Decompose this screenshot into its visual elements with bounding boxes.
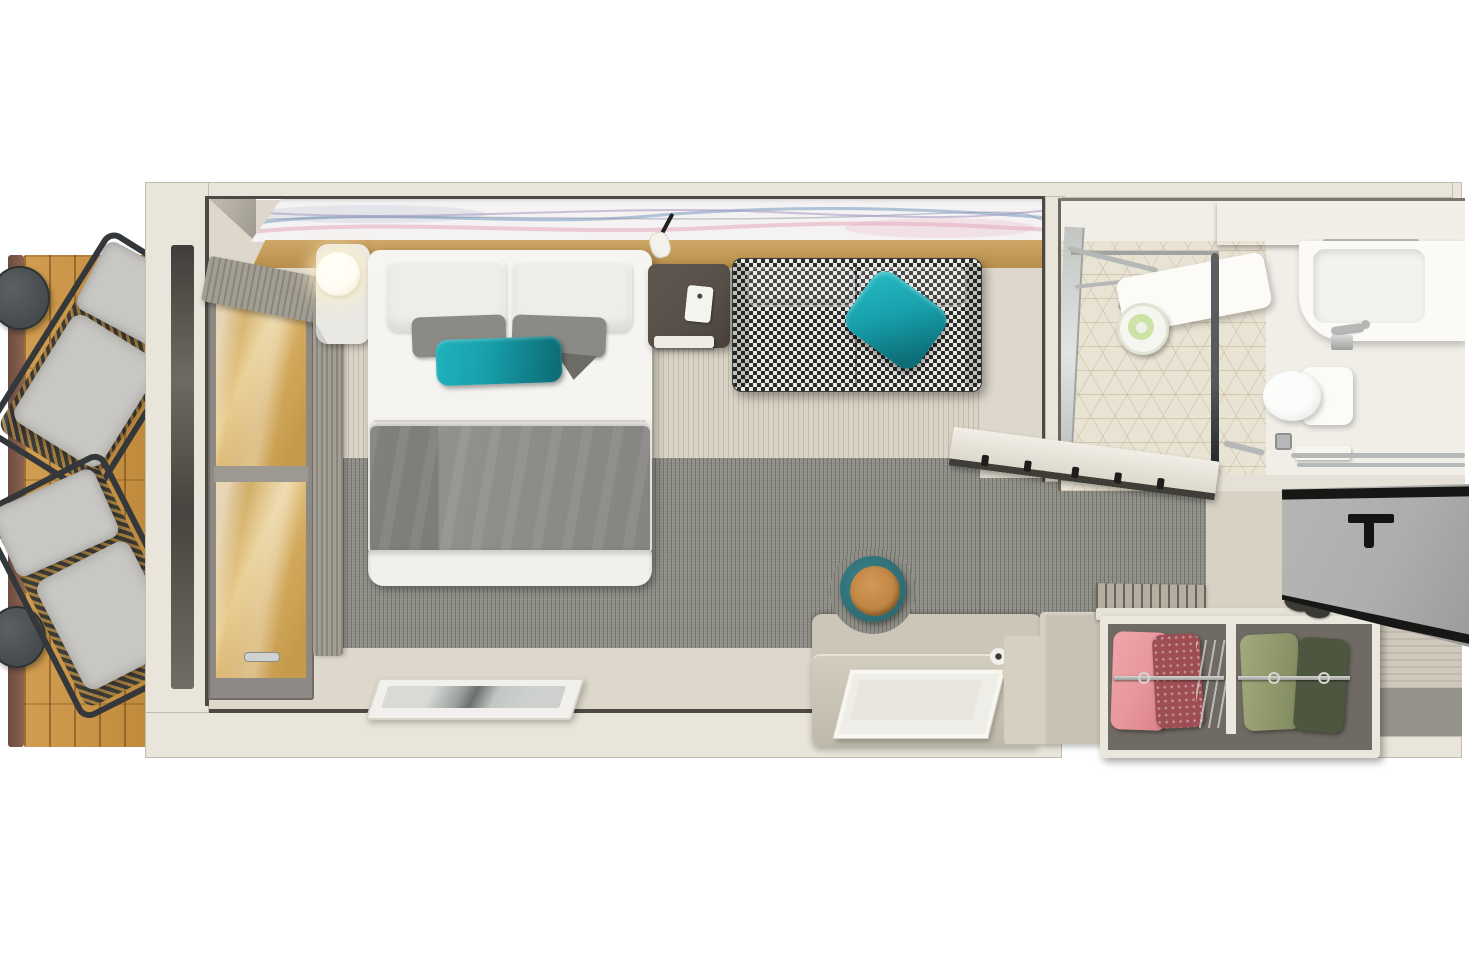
hanger-hook: [1138, 672, 1150, 684]
window-glass-lower: [216, 482, 306, 678]
towel-roll-hole: [1136, 322, 1147, 333]
closet-rail: [1238, 676, 1350, 680]
sofa-back-cushion: [747, 267, 855, 307]
closet: [1100, 616, 1380, 758]
stateroom-render: [0, 0, 1469, 979]
tv-screen: [381, 686, 566, 708]
toilet-flush-plate: [1331, 335, 1353, 350]
hanger-hook: [1318, 672, 1330, 684]
wall-hook: [1114, 472, 1122, 484]
wall-hook: [1024, 460, 1032, 472]
closet-divider: [1226, 624, 1236, 734]
curtain: [313, 300, 343, 656]
sofa-armrest: [965, 263, 981, 387]
platform-step: [1004, 636, 1044, 744]
closet-rail: [1114, 676, 1224, 680]
wall-hook: [981, 455, 989, 467]
window-divider: [214, 466, 308, 482]
floor-drain: [1275, 433, 1292, 450]
wall-hook: [1071, 467, 1079, 479]
door-handle-stem: [1364, 520, 1374, 548]
bedside-lamp: [316, 252, 360, 296]
faucet-base: [1361, 320, 1370, 329]
nightstand-drawer: [654, 336, 714, 348]
sliding-door-track: [171, 245, 194, 689]
bed-foot-runner: [368, 550, 652, 586]
toilet-bowl: [1263, 371, 1321, 421]
towel-rail: [1297, 463, 1465, 467]
stool-seat: [850, 566, 900, 616]
hanger-hook: [1268, 672, 1280, 684]
garment-dark-green: [1293, 636, 1349, 733]
sheet-seam: [374, 420, 646, 422]
window-handle: [244, 652, 280, 662]
sofa-armrest: [733, 263, 749, 387]
telephone: [684, 285, 714, 324]
blanket: [370, 426, 650, 554]
wall-trim-top: [208, 196, 1060, 199]
shower-glass-partition: [1211, 253, 1219, 467]
bed: [368, 250, 652, 586]
towel-rail: [1291, 453, 1465, 458]
desk-tray: [834, 670, 1005, 738]
accent-pillow-teal: [435, 336, 563, 386]
tray-inner: [850, 680, 982, 720]
door-edge: [1282, 486, 1469, 499]
sink-basin: [1313, 249, 1425, 323]
tv-panel: [365, 678, 585, 720]
wall-hook: [1156, 478, 1164, 490]
bathroom: [1058, 198, 1465, 491]
